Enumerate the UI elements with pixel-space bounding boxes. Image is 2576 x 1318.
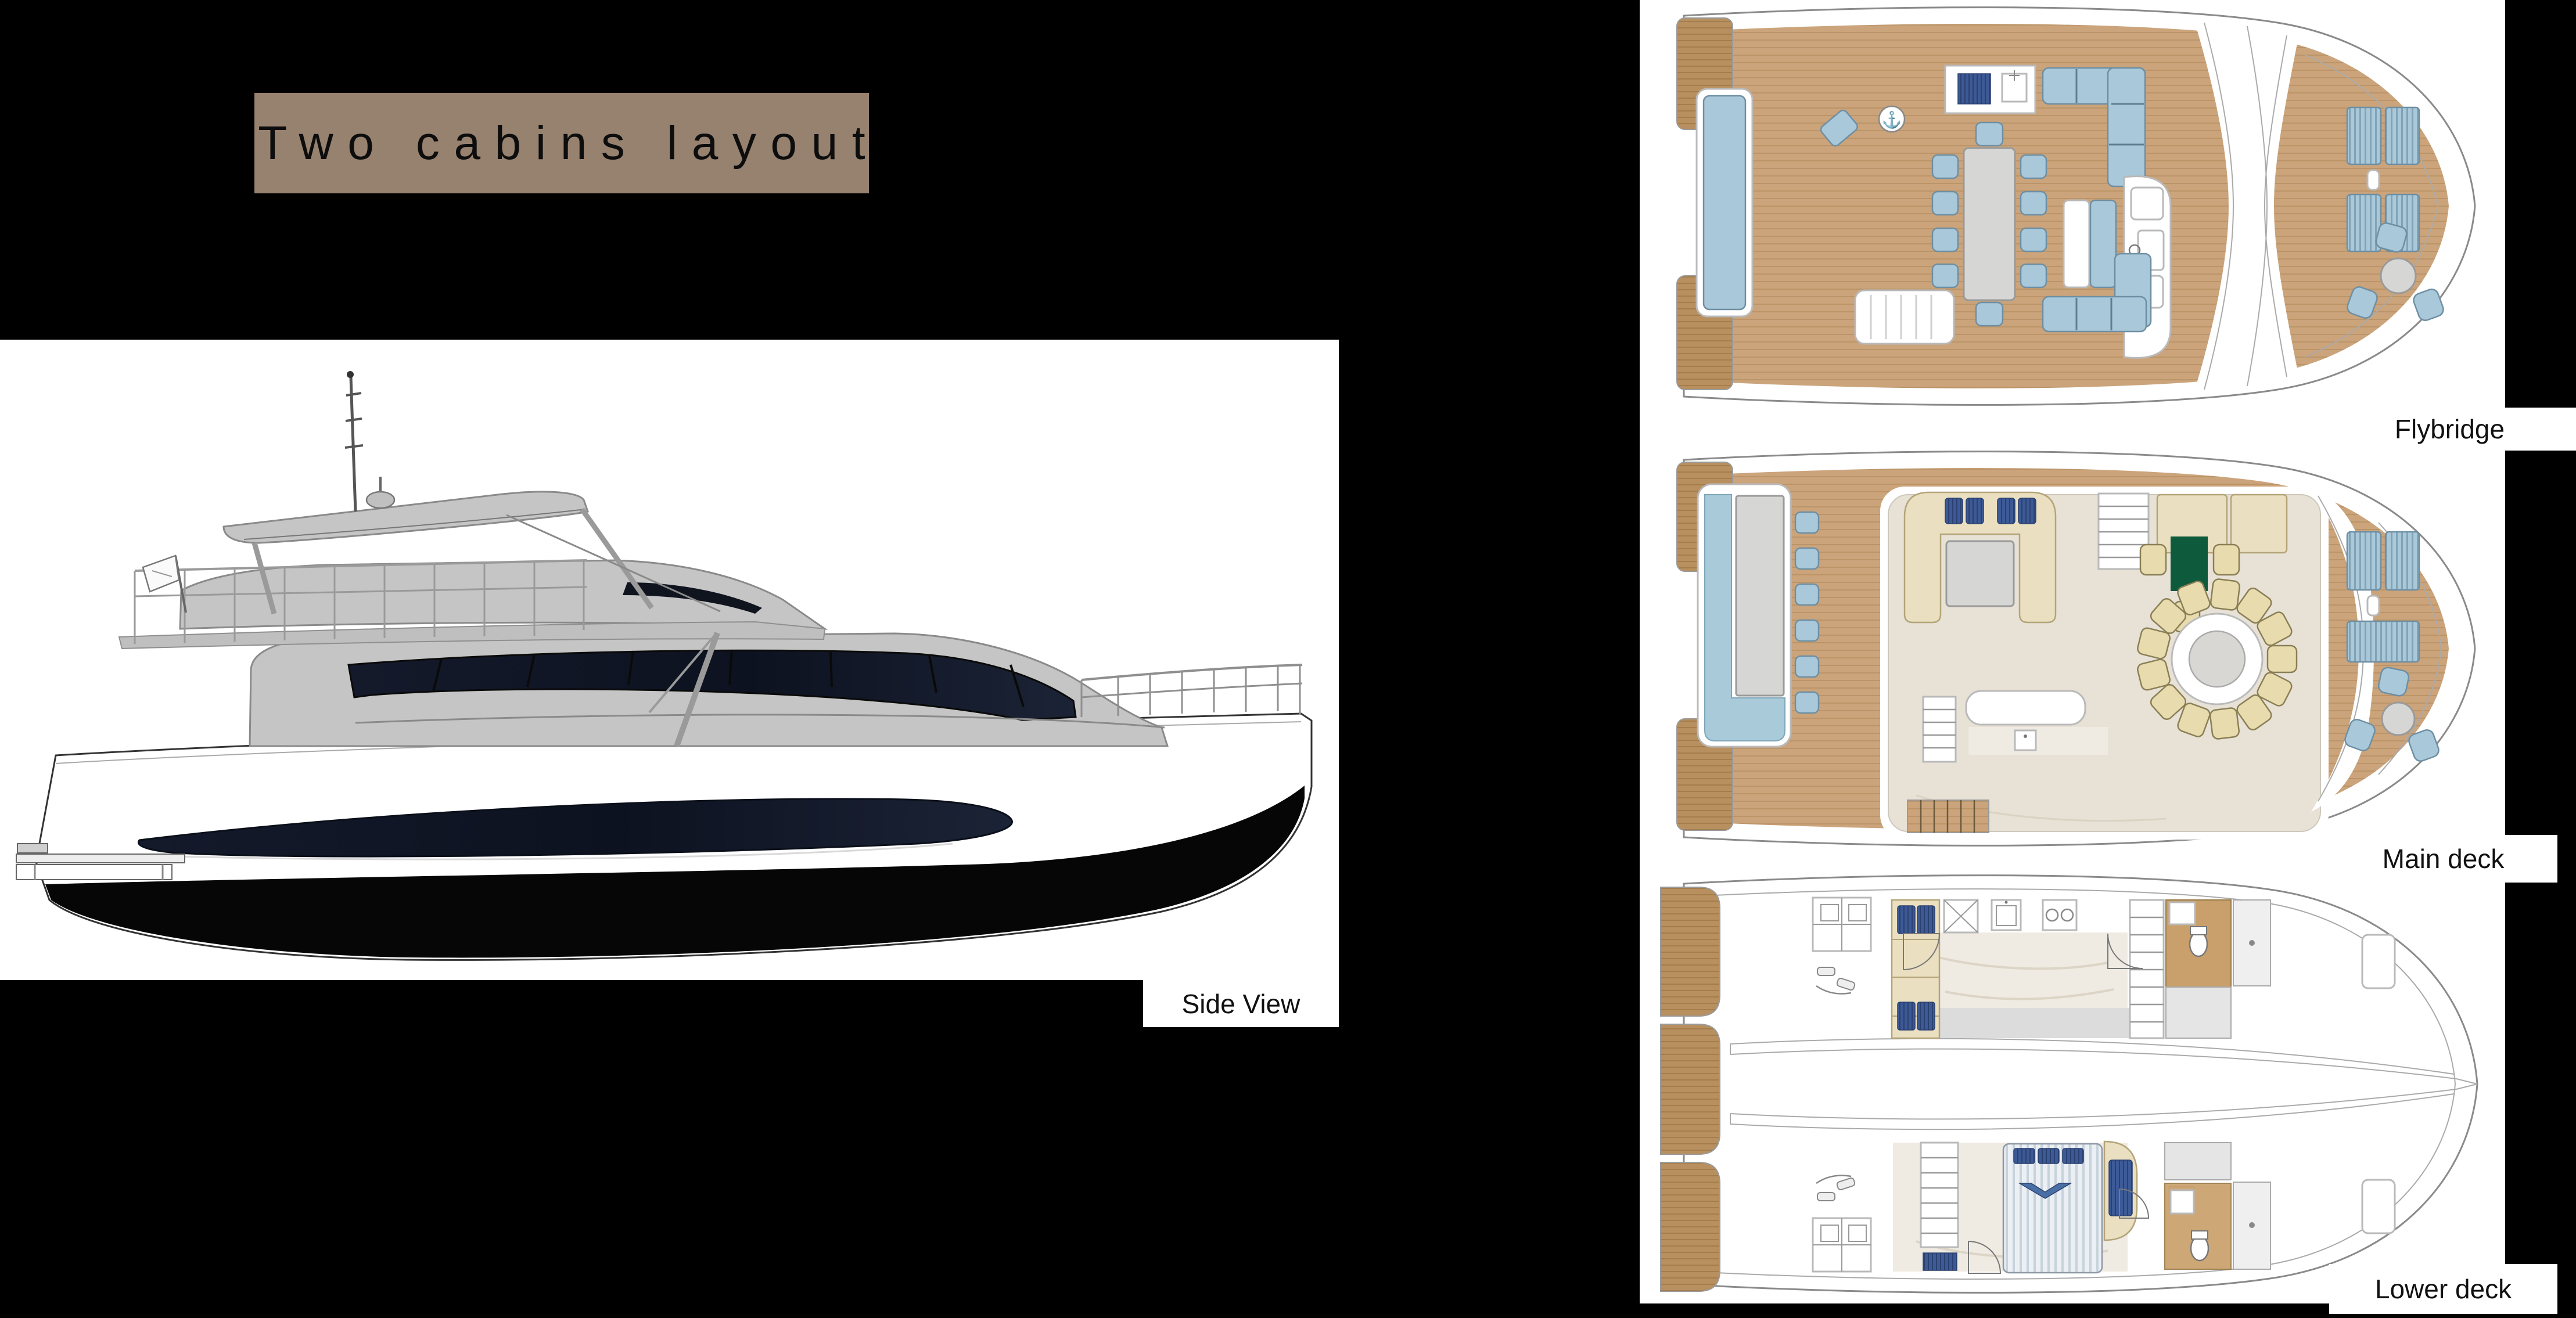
radar-dome [367, 492, 394, 508]
flybridge-wetbar [1945, 66, 2035, 113]
bedside-unit [2104, 1141, 2137, 1240]
page-title: Two cabins layout [244, 116, 880, 171]
galley-bench [1892, 900, 1939, 1038]
aft-deck-stairs [1907, 800, 1989, 833]
master-bed [2003, 1144, 2102, 1273]
page: Two cabins layout [0, 0, 2576, 1318]
grill [1958, 74, 1991, 104]
salon [1880, 487, 2329, 840]
side-view-panel [0, 340, 1339, 980]
deck-hardware [1816, 967, 1855, 994]
flybridge-bulwark [180, 560, 825, 629]
superstructure [119, 371, 1302, 746]
aft-sunpad [1855, 290, 1954, 344]
main-deck-plan [1643, 447, 2490, 851]
deck-hardware [1816, 1176, 1855, 1201]
guest-hull [1813, 898, 2395, 1038]
hardtop-roof [224, 492, 588, 543]
salon-stairs-down [1923, 697, 1956, 762]
deck-plans-panel: ⚓ [1640, 0, 2505, 1303]
lower-deck-plan [1643, 870, 2490, 1299]
deck-label-flybridge: Flybridge [2323, 408, 2576, 451]
foredeck-hatch [2362, 1180, 2395, 1233]
owner-bathroom [2165, 1143, 2270, 1269]
anchor-icon: ⚓ [1882, 110, 1902, 129]
side-view-drawing [0, 340, 1339, 980]
flybridge-plan: ⚓ [1643, 3, 2490, 413]
hull-tunnel-lines [1730, 1039, 2477, 1129]
dresser [1923, 1253, 1957, 1270]
stern-flag [143, 556, 186, 613]
title-banner: Two cabins layout [254, 93, 869, 193]
hull [16, 714, 1312, 960]
owner-hull [1813, 1141, 2395, 1273]
owner-stairs [1921, 1143, 1958, 1247]
foredeck-hatch [2362, 935, 2395, 988]
antenna-mast [345, 371, 394, 512]
lap-pool [1698, 484, 1791, 747]
salon-sofa [1905, 492, 2056, 622]
deck-label-lower-deck: Lower deck [2329, 1264, 2557, 1314]
windlass: ⚓ [1879, 106, 1905, 132]
deck-label-main-deck: Main deck [2329, 835, 2557, 883]
stern-platforms [1661, 887, 1720, 1291]
side-view-label: Side View [1143, 980, 1339, 1027]
salon-skylight [1697, 89, 1752, 316]
galley-appliances [1944, 900, 2076, 932]
guest-bathroom [2166, 900, 2270, 1038]
